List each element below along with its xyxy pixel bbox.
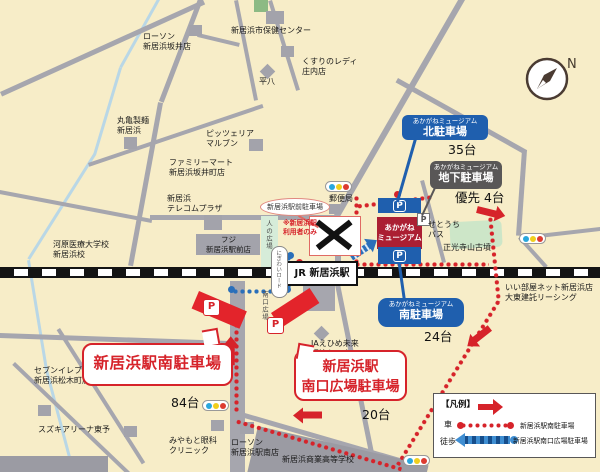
compass-icon (524, 56, 570, 106)
callout-tail (202, 328, 221, 347)
compass-north-label: N (567, 57, 577, 72)
minamiguchi-hiroba-label: 南口広場 (260, 291, 268, 321)
legend-title: 【凡例】 (441, 398, 475, 410)
parking-icon: P (393, 200, 407, 212)
lawson-sakai-label: ローソン 新居浜坂井店 (143, 32, 191, 53)
plaza-capacity-label: 20台 (362, 407, 390, 423)
road (234, 0, 258, 101)
north-parking-callout: あかがねミュージアム 北駐車場 (402, 115, 488, 140)
underground-parking-callout: あかがねミュージアム 地下駐車場 (430, 161, 502, 189)
traffic-signal-icon (202, 400, 229, 411)
road (517, 150, 527, 236)
suzuki-arena-label: スズキアリーナ東予 (38, 425, 110, 435)
walk-route-node (287, 252, 294, 259)
south-museum-capacity-label: 24台 (424, 329, 452, 345)
iibeya-net-label: いい部屋ネット新居浜店 大東建託リーシング (505, 283, 593, 304)
building (211, 420, 224, 431)
south-capacity-label: 84台 (171, 395, 199, 411)
station-south-parking-callout: 新居浜駅南駐車場 (82, 343, 233, 386)
building (329, 204, 340, 214)
legend-car-destination: 新居浜駅南駐車場 (520, 420, 574, 430)
map-canvas: JR 新居浜駅 P あかがね ミュージアム P P P P P あかがねミュ (0, 0, 600, 472)
route-arrow-left (302, 412, 322, 419)
legend-walk-destination: 新居浜駅南口広場駐車場 (513, 435, 588, 445)
building (204, 215, 222, 230)
legend-car-label: 車 (444, 419, 452, 430)
traffic-signal-icon (403, 455, 430, 466)
building (281, 46, 294, 57)
legend-car-arrow (478, 404, 494, 410)
building (38, 405, 51, 416)
building (124, 137, 137, 149)
legend-car-route-sample (461, 423, 509, 428)
familymart-label: ファミリーマート 新居浜坂井町店 (169, 158, 233, 179)
callout-tail (296, 343, 315, 362)
post-office-label: 郵便局 (329, 194, 353, 204)
walk-route-node (228, 286, 235, 293)
legend-car-route-node (457, 422, 464, 429)
building (124, 426, 137, 437)
callout-line2: 地下駐車場 (430, 172, 502, 184)
south-museum-parking-callout: あかがねミュージアム 南駐車場 (378, 298, 464, 327)
shogyo-highschool-label: 新居浜商業高等学校 (282, 455, 354, 465)
hirahachi-label: 平八 (259, 77, 275, 87)
station-south-parking-icon: P (203, 299, 220, 316)
legend-box: 【凡例】 車 新居浜駅南駐車場 徒歩 新居浜駅南口広場駐車場 (433, 393, 596, 458)
kusuri-lady-label: くすりのレディ 庄内店 (302, 57, 357, 78)
legend-walk-route-sample (464, 436, 510, 444)
shokoji-kofun-label: 正光寺山古墳 (443, 243, 491, 253)
underground-note-label: 優先 4台 (455, 190, 504, 206)
callout-line2: 南駐車場 (378, 309, 464, 321)
setouchi-bus-label: せとうち バス (428, 220, 460, 241)
building (266, 11, 284, 24)
jr-niihama-station: JR 新居浜駅 (286, 261, 358, 286)
pizzeria-marubun-label: ピッツェリア マルブン (206, 129, 254, 150)
museum-north-p-block: P (378, 198, 421, 213)
legend-walk-label: 徒歩 (440, 436, 456, 447)
callout-line2: 北駐車場 (402, 126, 488, 138)
north-capacity-label: 35台 (448, 142, 476, 158)
road (0, 190, 152, 223)
kawahara-college-label: 河原医療大学校 新居浜校 (53, 240, 109, 261)
traffic-signal-icon (519, 233, 546, 244)
marugame-seimen-label: 丸亀製麺 新居浜 (117, 116, 149, 137)
miyamoto-clinic-label: みやもと眼科 クリニック (169, 436, 217, 457)
akagane-museum: あかがね ミュージアム (377, 217, 422, 249)
hoken-center-label: 新居浜市保健センター (231, 26, 311, 36)
telecom-plaza-label: 新居浜 テレコムプラザ (167, 194, 223, 215)
hito-no-hiroba-label: 人の広場 (264, 220, 272, 250)
south-plaza-parking-icon: P (267, 317, 284, 334)
station-front-parking-callout: 新居浜駅前駐車場 (260, 198, 330, 216)
traffic-signal-icon (325, 181, 352, 192)
lawson-south-label: ローソン 新居浜駅南店 (231, 438, 279, 459)
parking-icon: P (393, 250, 407, 262)
river (93, 67, 122, 155)
building-area (0, 456, 108, 472)
callout-leader (396, 138, 417, 202)
fuji-store-label: フジ 新居浜駅前店 (206, 235, 251, 255)
nigiwai-road-label: にぎわいロード (274, 250, 281, 289)
station-users-only-note-label: ※新居浜駅 利用者のみ (283, 219, 317, 237)
legend-car-route-node (507, 422, 514, 429)
car-route (234, 316, 239, 414)
